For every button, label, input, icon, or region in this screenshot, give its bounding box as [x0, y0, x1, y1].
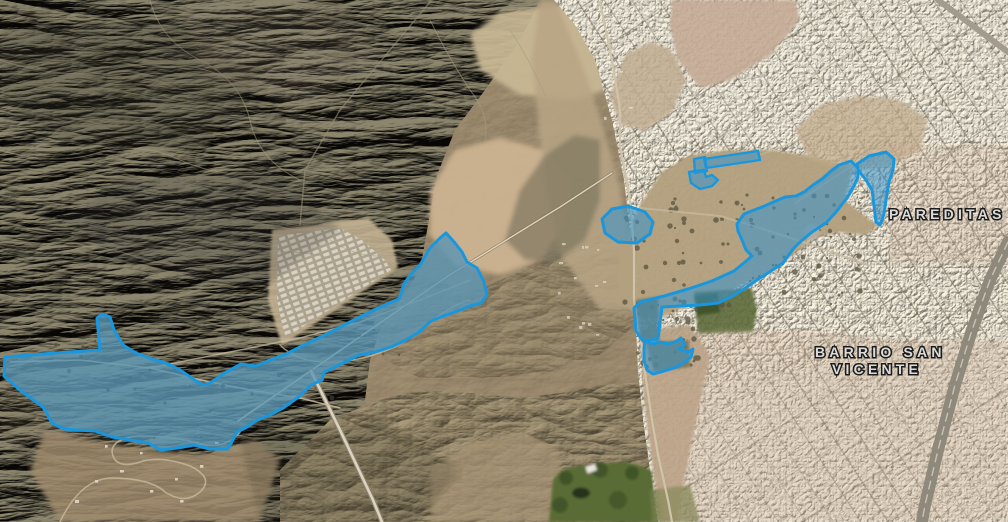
- svg-text:PAREDITAS: PAREDITAS: [889, 206, 1006, 222]
- svg-text:BARRIO SAN: BARRIO SAN: [815, 344, 946, 360]
- svg-text:VICENTE: VICENTE: [832, 361, 922, 377]
